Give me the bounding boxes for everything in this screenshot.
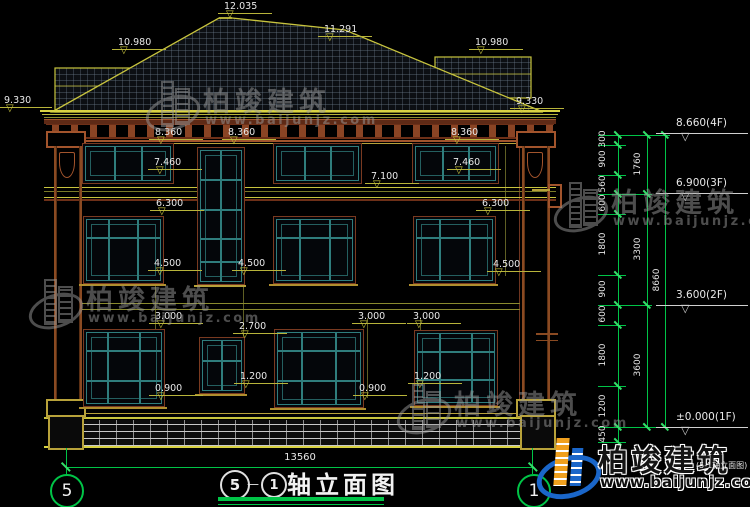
title-underline-thick [218,497,384,501]
base-bottom-line [44,446,556,448]
chain-dim-text: 1760 [633,149,643,179]
window-pane-frame [282,337,356,400]
level-arrow-icon: ▽ [681,131,689,142]
window-transom [277,237,352,239]
brand-logo: 柏竣建筑 www.baijunjz.com (5-1轴立面图) [536,436,750,500]
facade-dim-label: 7.460 [453,157,480,168]
window-mullion [141,147,143,180]
watermark-building-icon [412,384,425,430]
facade-dim-label: 4.500 [493,259,520,270]
window-mullion [107,333,109,403]
dim-extension-line [505,146,506,276]
watermark-url-text: www.baijunjz.com [456,416,629,431]
window-pane-frame [91,224,156,276]
chain-dim-line [665,135,666,427]
window-transom [201,238,241,240]
watermark-url-text: www.baijunjz.com [205,113,378,128]
title-underline-thin [218,504,384,505]
window-mullion [335,333,337,404]
window-sill [269,284,358,286]
floor-band-3f-b [44,191,556,192]
logo-swoosh-icon [531,448,606,507]
window [199,337,245,394]
window-sill [79,407,167,409]
watermark-building-icon-2 [58,286,73,323]
floor-band-3f-a [44,187,556,188]
level-line [656,427,748,428]
level-arrow-icon: ▽ [681,425,689,436]
watermark: 柏竣建筑www.baijunjz.com [28,278,248,336]
window-mullion [329,220,331,280]
window-mullion [114,147,116,180]
chain-dim-text: 1800 [598,340,608,370]
window-transom [203,360,241,362]
cornice-bottom [48,140,552,142]
level-label: ±0.000(1F) [676,411,736,423]
watermark-building-icon-2 [175,88,190,125]
window-transom [87,350,161,352]
window-frame [276,146,359,181]
watermark-building-icon-2 [426,391,441,428]
drawing-title: 轴立面图 [287,465,399,500]
watermark: 柏竣建筑www.baijunjz.com [396,383,616,441]
window-mullion [137,220,139,280]
window-transom [418,351,494,353]
facade-dim-label: 4.500 [238,258,265,269]
facade-dim-label: 1.200 [240,371,267,382]
axis-bubble-left: 5 [50,474,84,507]
window [274,329,364,408]
level-line [656,305,748,306]
chain-dim-line [647,135,648,427]
title-axis-start-label: 5 [230,476,240,494]
facade-dim-label: 10.980 [118,37,151,48]
window-transom [201,261,241,263]
facade-dim-label: 0.900 [155,383,182,394]
chain-dim-text: 600 [598,299,608,329]
window-transom [201,179,241,181]
axis-bubble-left-label: 5 [62,481,73,501]
facade-dim-label: 10.980 [475,37,508,48]
window-transom [87,237,160,239]
pilaster-right-shaft [522,146,550,400]
window-sill [409,284,498,286]
window-transom [278,350,360,352]
title-axis-end-label: 1 [269,478,278,493]
window-pane-frame [281,151,354,176]
watermark: 柏竣建筑www.baijunjz.com [553,181,750,239]
facade-dim-label: 7.100 [371,171,398,182]
window-mullion [139,333,141,403]
level-arrow-icon: ▽ [681,303,689,314]
watermark-url-text: www.baijunjz.com [613,214,750,229]
window-pane-frame [281,224,348,276]
window-frame [416,219,493,281]
window-mullion [301,333,303,404]
window [83,216,164,284]
window-mullion [442,147,444,180]
level-label: 3.600(2F) [676,289,727,301]
facade-dim-label: 6.300 [482,198,509,209]
window [413,216,496,284]
chain-tick-line [598,135,670,136]
window-frame [277,332,361,405]
watermark-building-icon [44,279,57,325]
window-pane-frame [91,337,157,399]
axis-extension-left [66,448,67,474]
facade-dim-label: 11.291 [324,24,357,35]
facade-dim-label: 3.000 [413,311,440,322]
window-sill [270,408,366,410]
title-axis-end-bubble: 1 [261,472,287,498]
window-frame [200,150,242,282]
title-axis-dash: — [247,477,259,491]
spout-lower-line2 [536,340,558,341]
window [273,216,356,284]
window-frame [86,332,162,404]
facade-dim-label: 6.300 [156,198,183,209]
window-mullion [304,147,306,180]
facade-dim-label: 12.035 [224,1,257,12]
facade-dim-label: 7.460 [154,157,181,168]
watermark-building-icon [569,182,582,228]
chain-dim-text: 3600 [633,350,643,380]
elevation-drawing-canvas: 13560 5 1 5 — 1 轴立面图 柏竣建筑 www.baijunjz.c… [0,0,750,507]
facade-dim-label: 9.330 [516,96,543,107]
window-transom [87,380,161,382]
facade-dim-label: 1.200 [414,371,441,382]
watermark-building-icon [161,81,174,127]
facade-dim-label: 4.500 [154,258,181,269]
wall-edge-right [519,144,520,414]
facade-dim-label: 9.330 [4,95,31,106]
overall-width-dim: 13560 [272,452,328,463]
title-axis-start-bubble: 5 [220,470,250,500]
watermark-building-icon-2 [583,189,598,226]
logo-url-text: www.baijunjz.com [600,473,750,491]
facade-dim-label: 8.360 [451,127,478,138]
level-label: 8.660(4F) [676,117,727,129]
floor-band-3f-c [44,197,556,198]
level-line [656,133,748,134]
chain-dim-text: 8660 [652,265,662,295]
window-mullion [221,341,223,390]
logo-overlay-text: (5-1轴立面图) [696,460,747,471]
window-mullion [469,220,471,280]
pilaster-left-shaft [54,146,82,400]
window-mullion [330,147,332,180]
window-transom [201,209,241,211]
window-frame [276,219,353,281]
window-frame [86,219,161,281]
window-transom [417,237,492,239]
window-mullion [439,220,441,280]
spout-upper-line [532,189,550,191]
facade-dim-label: 0.900 [359,383,386,394]
watermark-url-text: www.baijunjz.com [88,311,261,326]
pilaster-left-pedestal [48,415,84,450]
axis-extension-right [532,448,533,474]
window-pane-frame [421,224,488,276]
window-transom [278,380,360,382]
window-mullion [108,220,110,280]
window-mullion [299,220,301,280]
facade-dim-label: 3.000 [358,311,385,322]
floor-band-3f-d [44,199,556,201]
window [273,143,362,184]
watermark: 柏竣建筑www.baijunjz.com [145,80,365,138]
spout-lower-line1 [536,333,558,335]
